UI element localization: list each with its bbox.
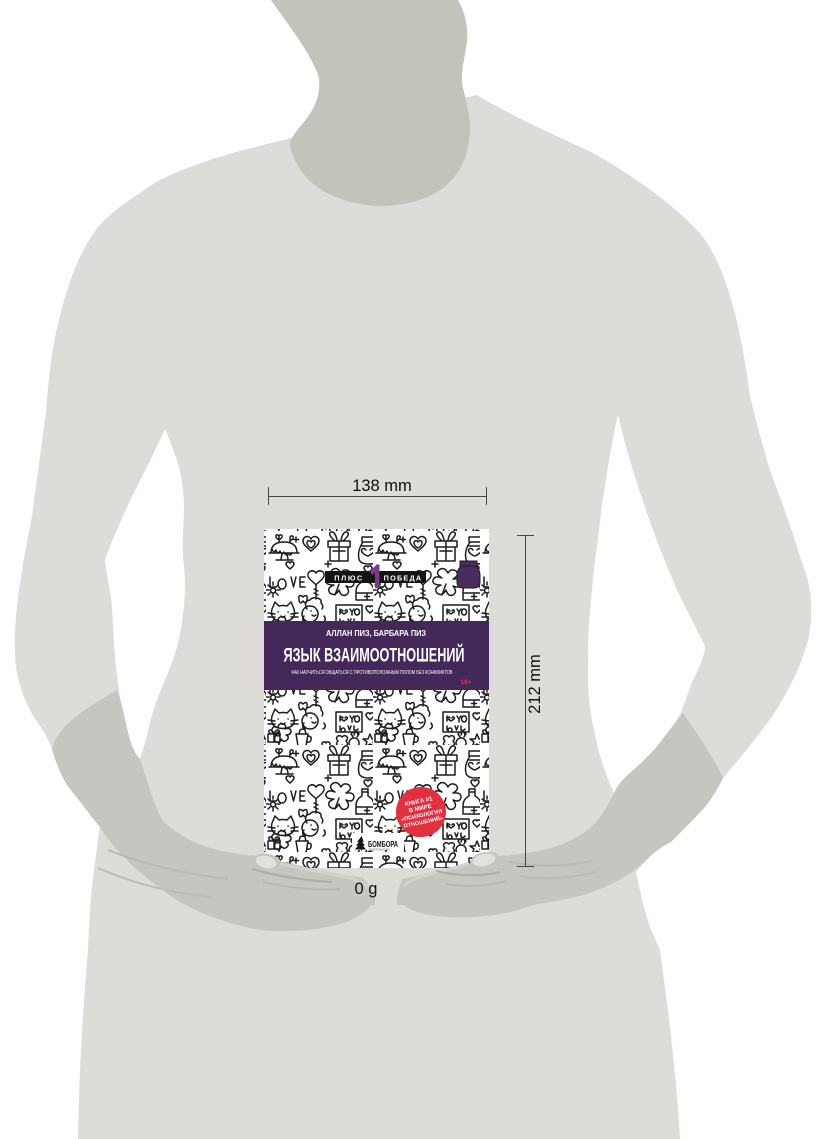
svg-text:18+: 18+ <box>460 679 471 686</box>
svg-text:212 mm: 212 mm <box>526 654 544 714</box>
svg-text:КАК НАУЧИТЬСЯ ОБЩАТЬСЯ С ПРОТИ: КАК НАУЧИТЬСЯ ОБЩАТЬСЯ С ПРОТИВОПОЛОЖНЫМ… <box>292 670 453 676</box>
svg-text:АЛЛАН ПИЗ, БАРБАРА ПИЗ: АЛЛАН ПИЗ, БАРБАРА ПИЗ <box>326 628 426 638</box>
svg-text:ЯЗЫК ВЗАИМООТНОШЕНИЙ: ЯЗЫК ВЗАИМООТНОШЕНИЙ <box>284 645 465 667</box>
svg-text:ИЗДАТЕЛЬСТВО: ИЗДАТЕЛЬСТВО <box>369 848 391 852</box>
svg-text:138 mm: 138 mm <box>352 477 412 495</box>
svg-text:ПОБЕДА: ПОБЕДА <box>384 573 423 582</box>
svg-text:ПЛЮС: ПЛЮС <box>334 573 363 582</box>
svg-text:0 g: 0 g <box>355 880 378 898</box>
